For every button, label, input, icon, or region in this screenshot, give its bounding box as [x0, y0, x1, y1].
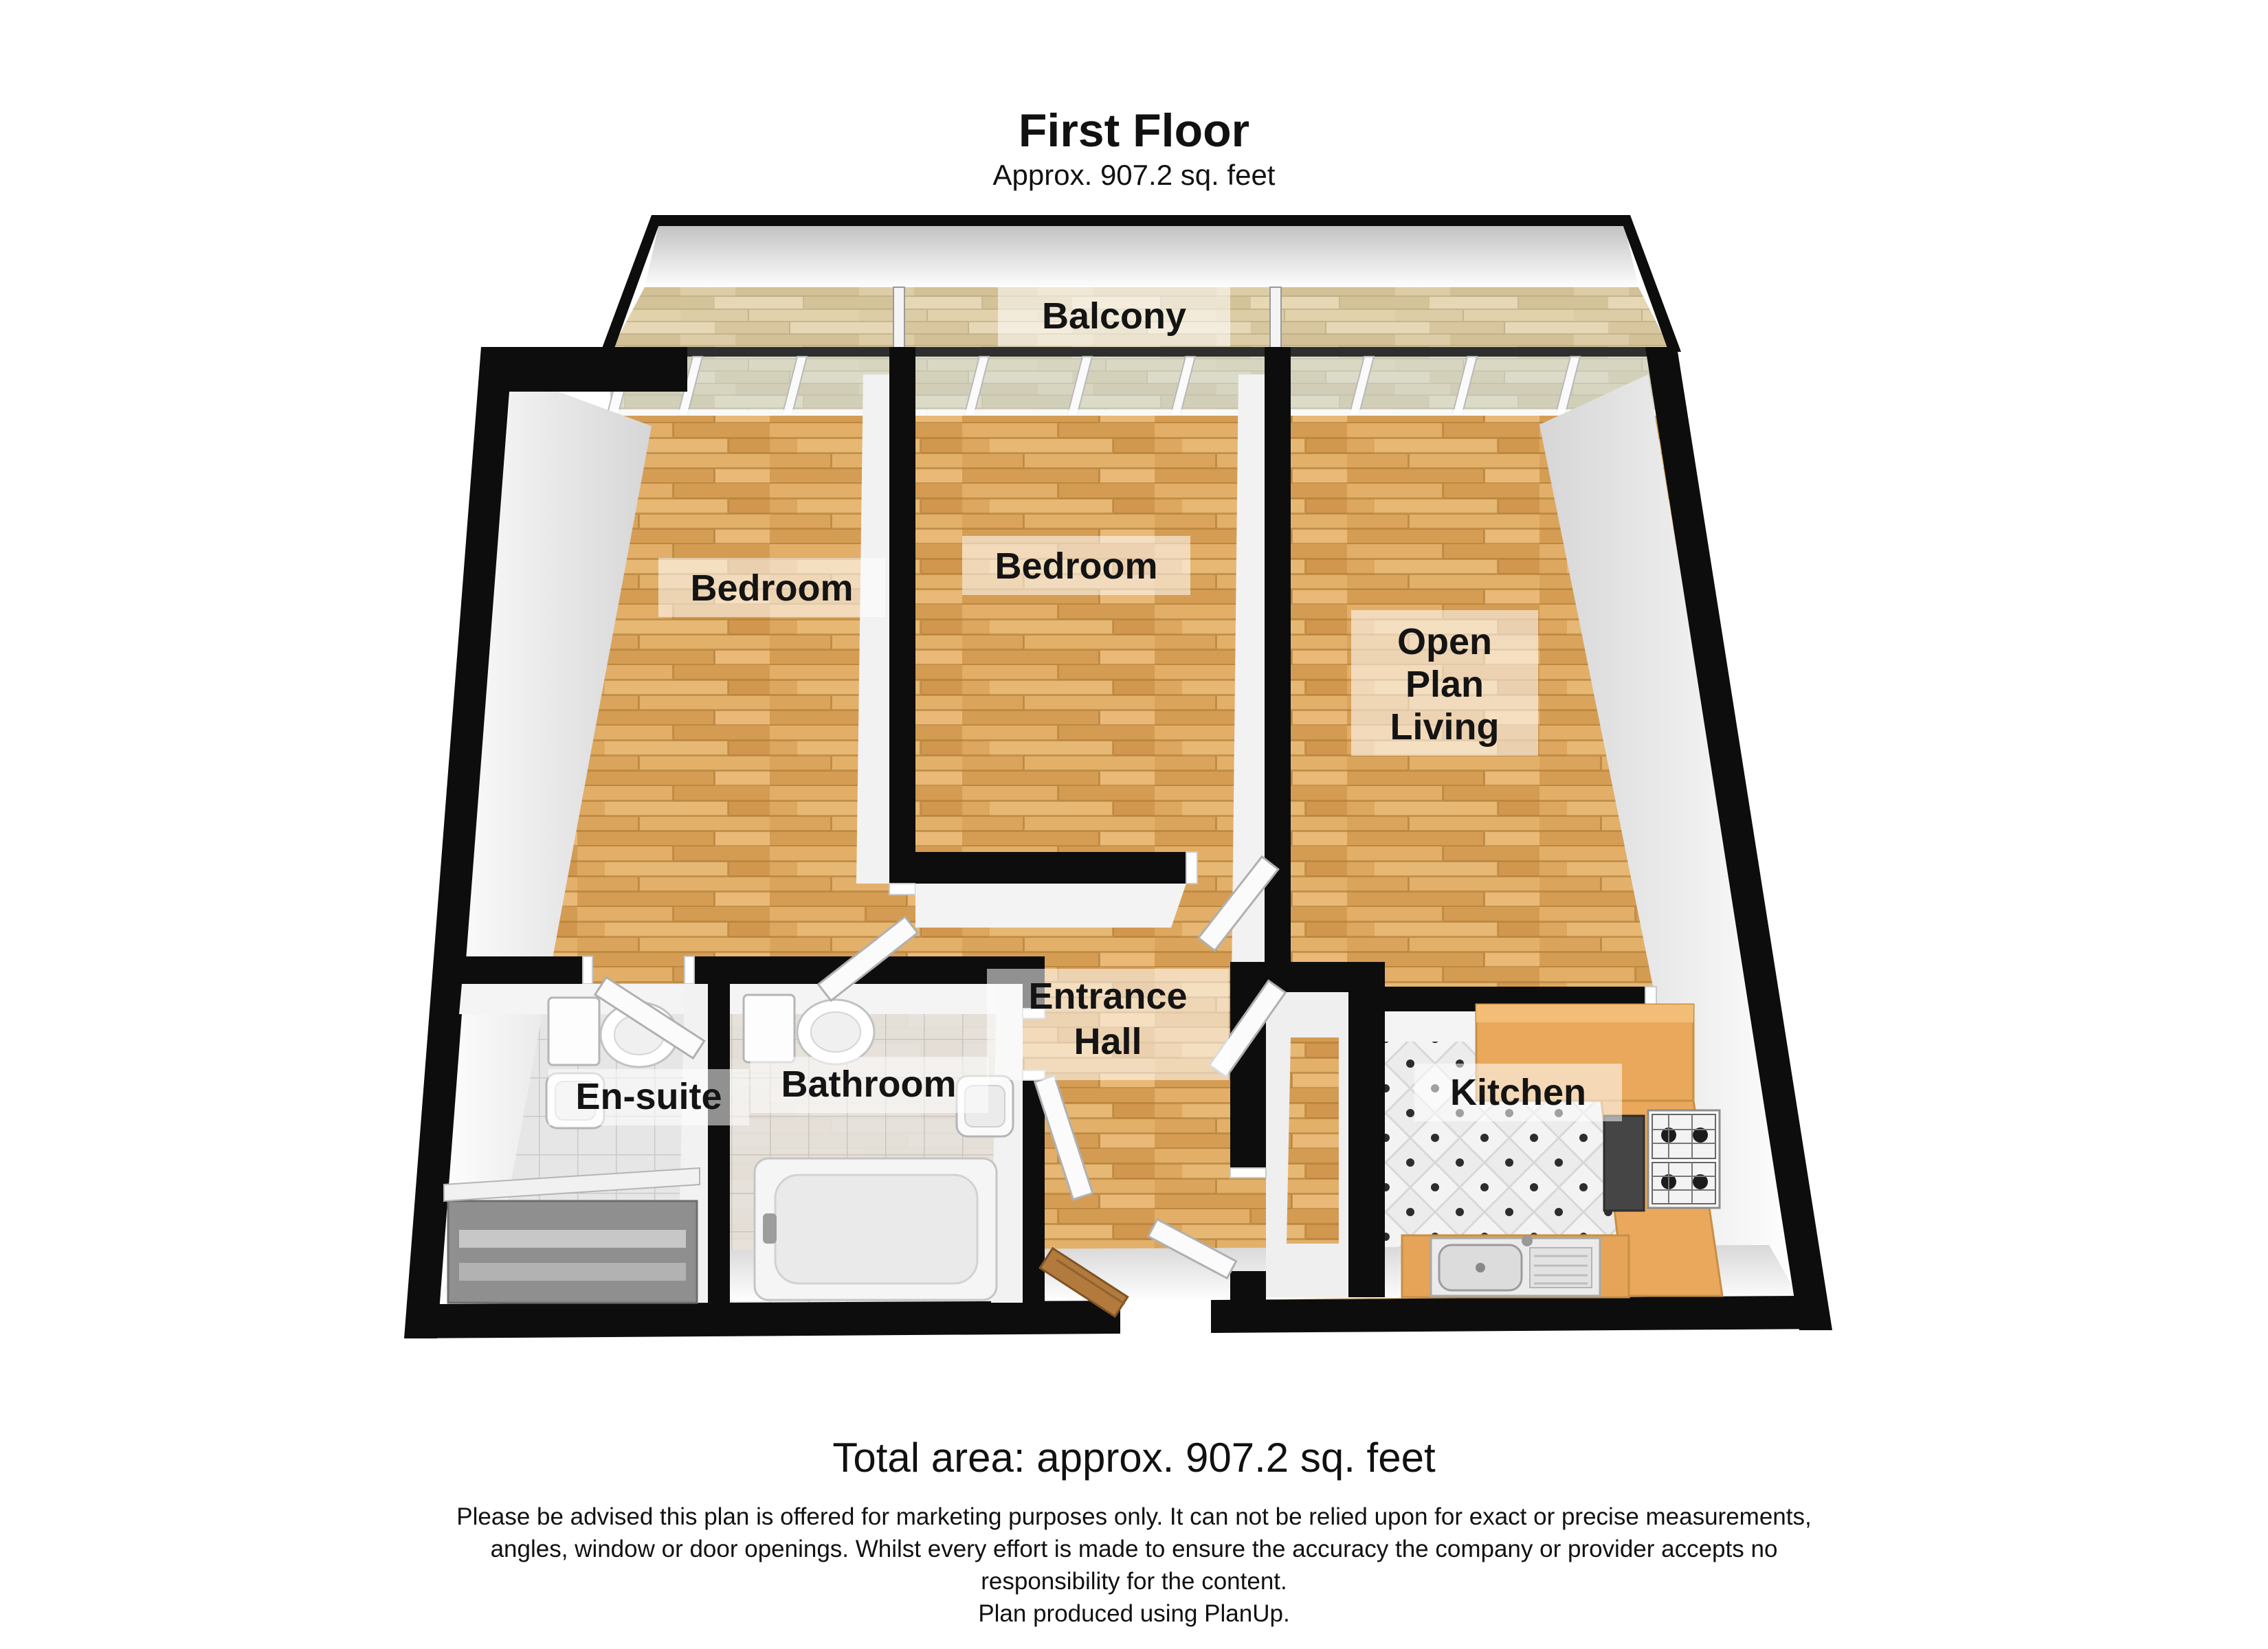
bathroom-toilet-cistern — [744, 995, 794, 1062]
label-kitchen: Kitchen — [1414, 1064, 1622, 1121]
label-bathroom: Bathroom — [751, 1057, 988, 1113]
svg-text:Hall: Hall — [1074, 1021, 1142, 1062]
kitchen-oven — [1604, 1116, 1644, 1211]
credit-line: Plan produced using PlanUp. — [0, 1597, 2268, 1630]
svg-text:Bathroom: Bathroom — [781, 1064, 957, 1105]
plan-footer: Total area: approx. 907.2 sq. feet Pleas… — [0, 1433, 2268, 1630]
svg-text:Entrance: Entrance — [1028, 976, 1187, 1017]
cupboard-left-wall-lower — [1230, 1271, 1266, 1300]
floorplan-page: First Floor Approx. 907.2 sq. feet — [0, 0, 2268, 1649]
disclaimer-line: angles, window or door openings. Whilst … — [0, 1533, 2268, 1565]
outer-wall-bottom-right — [1211, 1296, 1831, 1333]
balcony-back-wall-face — [645, 226, 1638, 287]
kitchen-left-wall — [1348, 962, 1385, 1297]
ensuite-door-cap2 — [685, 956, 694, 984]
ensuite-door-cap1 — [583, 956, 592, 984]
bath-tub — [755, 1158, 997, 1300]
bedM-bottom-wall-face — [915, 884, 1186, 928]
label-balcony: Balcony — [998, 286, 1230, 346]
kitchen-sink — [1431, 1235, 1600, 1296]
svg-text:Kitchen: Kitchen — [1450, 1072, 1586, 1113]
cupboard-door-cap — [1230, 1168, 1266, 1178]
balcony-divider-right — [1270, 287, 1281, 353]
total-area-text: Total area: approx. 907.2 sq. feet — [0, 1433, 2268, 1483]
balcony-back-wall — [652, 215, 1630, 226]
floorplan-drawing: Balcony Bedroom Bedroom Open Plan Living… — [0, 0, 2268, 1649]
ensuite-toilet-cistern — [548, 998, 599, 1065]
glazed-wall-head — [610, 347, 1674, 357]
label-en-suite: En-suite — [548, 1069, 749, 1125]
wallB — [1265, 347, 1291, 984]
glazed-wall-sill — [610, 410, 1674, 416]
svg-text:Balcony: Balcony — [1042, 295, 1186, 337]
label-open-plan-living: Open Plan Living — [1351, 610, 1538, 756]
ensuite-bathroom-divider — [708, 984, 730, 1303]
outer-wall-top-left-seg — [481, 347, 687, 392]
glazed-wall — [607, 347, 1674, 416]
disclaimer-line: responsibility for the content. — [0, 1565, 2268, 1597]
svg-text:Open: Open — [1397, 621, 1492, 662]
kitchen-hob — [1648, 1110, 1720, 1208]
bedM-bottom-wall — [915, 852, 1186, 884]
outer-wall-bottom-left — [404, 1301, 1120, 1338]
wallA-end-cap — [889, 884, 915, 895]
label-bedroom-left: Bedroom — [658, 558, 885, 617]
bathrooms-top-wall-seg1 — [460, 956, 592, 984]
disclaimer-line: Please be advised this plan is offered f… — [0, 1501, 2268, 1533]
wallA — [889, 347, 915, 884]
bathroom-toilet-seat — [811, 1012, 860, 1052]
svg-text:Plan: Plan — [1405, 664, 1484, 705]
label-entrance-hall: Entrance Hall — [987, 969, 1229, 1080]
glass-tint — [610, 349, 1674, 416]
svg-text:Bedroom: Bedroom — [994, 546, 1157, 587]
balcony-divider-left — [893, 287, 904, 353]
kitchen-counter-top-edge — [1476, 1005, 1693, 1022]
svg-text:Living: Living — [1390, 706, 1500, 748]
svg-text:En-suite: En-suite — [575, 1076, 722, 1117]
cupboard-floor — [1287, 1037, 1339, 1244]
bedM-door-cap — [1186, 852, 1197, 884]
svg-text:Bedroom: Bedroom — [690, 568, 853, 609]
label-bedroom-middle: Bedroom — [962, 536, 1190, 595]
disclaimer: Please be advised this plan is offered f… — [0, 1501, 2268, 1630]
